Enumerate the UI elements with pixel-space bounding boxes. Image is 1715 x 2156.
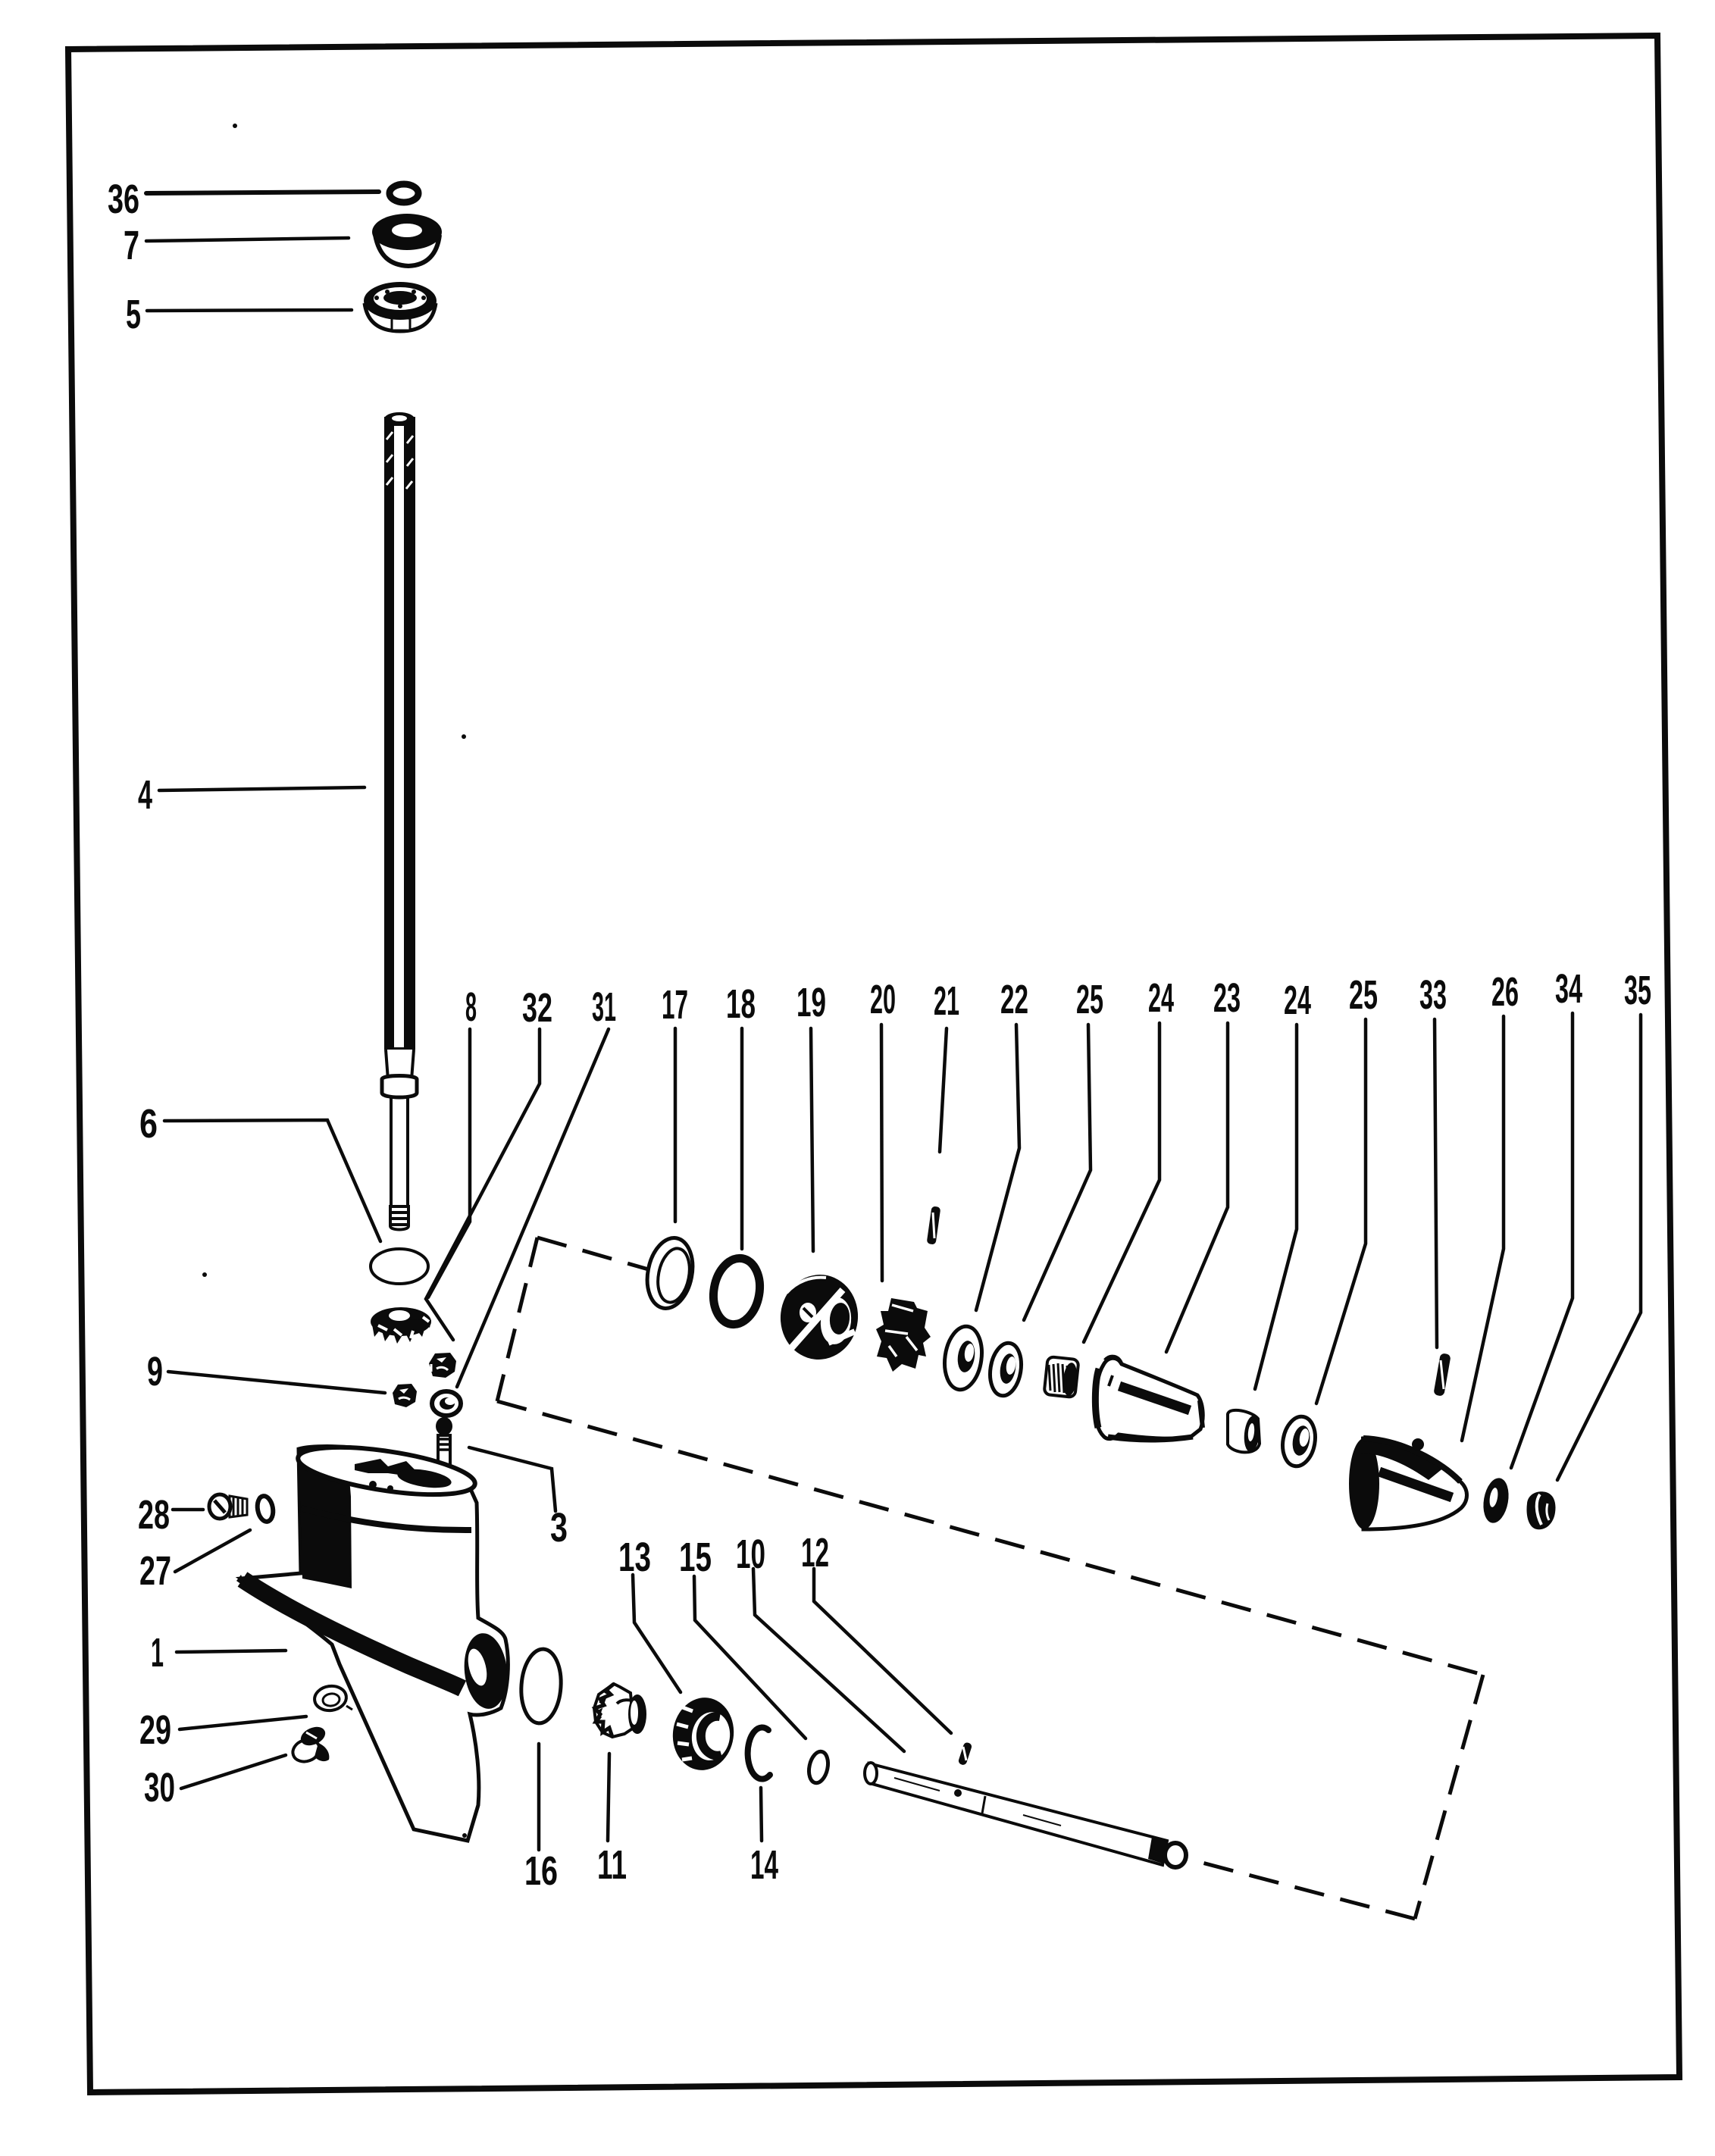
svg-text:25: 25: [1076, 977, 1103, 1022]
svg-text:27: 27: [139, 1548, 171, 1594]
svg-text:17: 17: [662, 982, 688, 1028]
svg-text:7: 7: [124, 223, 139, 268]
svg-text:5: 5: [126, 292, 141, 337]
svg-text:24: 24: [1148, 975, 1174, 1021]
svg-text:23: 23: [1213, 975, 1241, 1021]
svg-text:16: 16: [524, 1848, 558, 1894]
svg-text:8: 8: [465, 984, 477, 1030]
svg-text:3: 3: [550, 1505, 568, 1551]
svg-text:25: 25: [1349, 972, 1378, 1018]
svg-text:26: 26: [1491, 969, 1519, 1015]
svg-text:12: 12: [801, 1530, 829, 1576]
svg-text:33: 33: [1419, 972, 1447, 1018]
svg-text:9: 9: [147, 1349, 163, 1394]
svg-text:30: 30: [144, 1765, 175, 1810]
svg-text:1: 1: [151, 1630, 164, 1676]
svg-text:24: 24: [1284, 978, 1311, 1023]
svg-text:20: 20: [870, 977, 896, 1022]
svg-text:28: 28: [138, 1492, 170, 1538]
svg-text:31: 31: [592, 984, 616, 1030]
svg-text:36: 36: [108, 177, 139, 222]
svg-text:19: 19: [796, 980, 826, 1025]
svg-text:21: 21: [934, 978, 959, 1024]
svg-text:10: 10: [736, 1532, 765, 1577]
svg-text:22: 22: [1000, 977, 1028, 1022]
svg-text:11: 11: [597, 1842, 627, 1888]
svg-text:13: 13: [618, 1535, 651, 1580]
svg-text:15: 15: [679, 1535, 712, 1580]
svg-text:6: 6: [139, 1101, 158, 1147]
svg-text:34: 34: [1555, 966, 1582, 1012]
svg-text:29: 29: [139, 1707, 171, 1753]
svg-text:32: 32: [522, 985, 552, 1031]
svg-text:18: 18: [726, 981, 756, 1027]
svg-text:35: 35: [1624, 968, 1651, 1013]
svg-text:14: 14: [750, 1842, 778, 1888]
svg-text:4: 4: [138, 772, 152, 818]
